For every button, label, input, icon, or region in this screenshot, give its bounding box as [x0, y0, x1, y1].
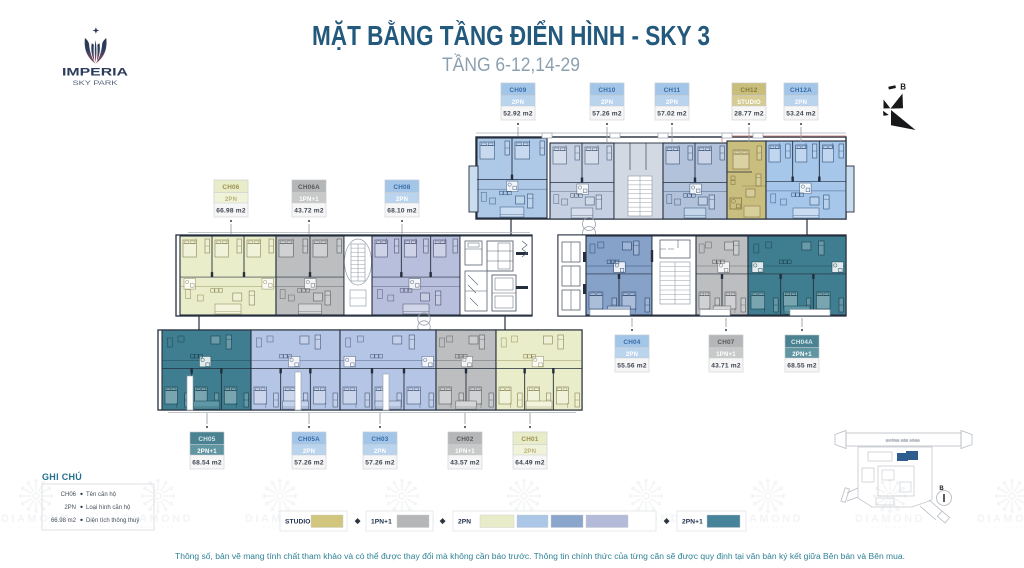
svg-text:CH06: CH06: [61, 492, 77, 498]
svg-text:28.77 m2: 28.77 m2: [734, 111, 764, 118]
svg-text:CH09: CH09: [509, 87, 526, 94]
svg-text:57.02 m2: 57.02 m2: [657, 111, 687, 118]
svg-text:2PN+1: 2PN+1: [197, 449, 217, 455]
svg-text:CH12A: CH12A: [790, 87, 812, 94]
svg-text:66.98 m2: 66.98 m2: [216, 208, 246, 215]
svg-text:1PN+1: 1PN+1: [371, 519, 392, 526]
svg-text:53.24 m2: 53.24 m2: [786, 111, 816, 118]
svg-text:CH04A: CH04A: [791, 339, 813, 346]
svg-text:DIAMOND: DIAMOND: [855, 513, 925, 525]
svg-text:HOLDINGS: HOLDINGS: [19, 526, 54, 530]
svg-text:CH06: CH06: [222, 184, 239, 191]
svg-text:CH05A: CH05A: [298, 436, 320, 443]
svg-text:1PN+1: 1PN+1: [716, 352, 736, 358]
svg-text:SKY PARK: SKY PARK: [73, 80, 119, 87]
svg-text:TẦNG 6-12,14-29: TẦNG 6-12,14-29: [442, 53, 580, 76]
svg-text:CH10: CH10: [598, 87, 615, 94]
svg-text:DIAMOND: DIAMOND: [977, 513, 1024, 525]
svg-text:IMPERIA: IMPERIA: [62, 66, 128, 78]
svg-text:2PN: 2PN: [512, 100, 524, 106]
svg-text:2PN: 2PN: [458, 519, 471, 526]
svg-text:HOLDINGS: HOLDINGS: [995, 526, 1024, 530]
svg-text:55.56 m2: 55.56 m2: [617, 363, 647, 370]
svg-text:Tên căn hộ: Tên căn hộ: [86, 492, 117, 498]
svg-text:CH04: CH04: [623, 339, 640, 346]
svg-text:43.72 m2: 43.72 m2: [294, 208, 324, 215]
svg-text:57.26 m2: 57.26 m2: [365, 460, 395, 467]
svg-text:MẶT BẰNG TẦNG ĐIỂN HÌNH - SKY: MẶT BẰNG TẦNG ĐIỂN HÌNH - SKY 3: [312, 20, 710, 51]
svg-text:68.54 m2: 68.54 m2: [192, 460, 222, 467]
svg-text:2PN+1: 2PN+1: [792, 352, 812, 358]
svg-text:STUDIO: STUDIO: [285, 519, 311, 526]
svg-text:2PN: 2PN: [225, 197, 237, 203]
svg-text:2PN: 2PN: [666, 100, 678, 106]
svg-text:2PN: 2PN: [374, 449, 386, 455]
svg-text:68.55 m2: 68.55 m2: [787, 363, 817, 370]
svg-text:CH06A: CH06A: [298, 184, 320, 191]
svg-text:Diện tích thông thuỷ: Diện tích thông thuỷ: [86, 517, 139, 524]
svg-text:64.49 m2: 64.49 m2: [515, 460, 545, 467]
svg-text:2PN: 2PN: [303, 449, 315, 455]
svg-text:52.92 m2: 52.92 m2: [503, 111, 533, 118]
svg-text:CH08: CH08: [393, 184, 410, 191]
svg-text:2PN: 2PN: [626, 352, 638, 358]
svg-text:2PN: 2PN: [64, 505, 76, 511]
svg-text:HOLDINGS: HOLDINGS: [141, 526, 176, 530]
svg-text:B: B: [900, 82, 906, 91]
svg-text:68.10 m2: 68.10 m2: [387, 208, 417, 215]
svg-text:2PN+1: 2PN+1: [682, 519, 703, 526]
svg-text:43.57 m2: 43.57 m2: [450, 460, 480, 467]
svg-text:43.71 m2: 43.71 m2: [711, 363, 741, 370]
svg-text:2PN: 2PN: [601, 100, 613, 106]
svg-text:CH11: CH11: [664, 87, 681, 94]
svg-text:2PN: 2PN: [524, 449, 536, 455]
svg-text:Thông số, bản vẽ mang tính chấ: Thông số, bản vẽ mang tính chất tham khả…: [175, 552, 905, 561]
svg-text:ĐƯỜNG BÊN SÔNG: ĐƯỜNG BÊN SÔNG: [886, 438, 920, 443]
svg-text:STUDIO: STUDIO: [737, 100, 761, 106]
svg-text:66.98 m2: 66.98 m2: [51, 518, 77, 524]
svg-text:57.26 m2: 57.26 m2: [294, 460, 324, 467]
svg-text:Loại hình căn hộ: Loại hình căn hộ: [86, 505, 131, 511]
svg-text:CH03: CH03: [371, 436, 388, 443]
svg-text:CH07: CH07: [717, 339, 734, 346]
svg-text:GHI CHÚ: GHI CHÚ: [42, 471, 82, 482]
svg-text:1PN+1: 1PN+1: [455, 449, 475, 455]
svg-text:2PN: 2PN: [396, 197, 408, 203]
svg-text:2PN: 2PN: [795, 100, 807, 106]
svg-text:B: B: [939, 486, 944, 492]
svg-text:1PN+1: 1PN+1: [299, 197, 319, 203]
svg-text:CH01: CH01: [521, 436, 538, 443]
svg-text:CH12: CH12: [740, 87, 757, 94]
svg-text:CH05: CH05: [198, 436, 215, 443]
svg-text:HOLDINGS: HOLDINGS: [751, 526, 786, 530]
svg-text:HOLDINGS: HOLDINGS: [873, 526, 908, 530]
svg-text:57.26 m2: 57.26 m2: [592, 111, 622, 118]
svg-text:CH02: CH02: [456, 436, 473, 443]
